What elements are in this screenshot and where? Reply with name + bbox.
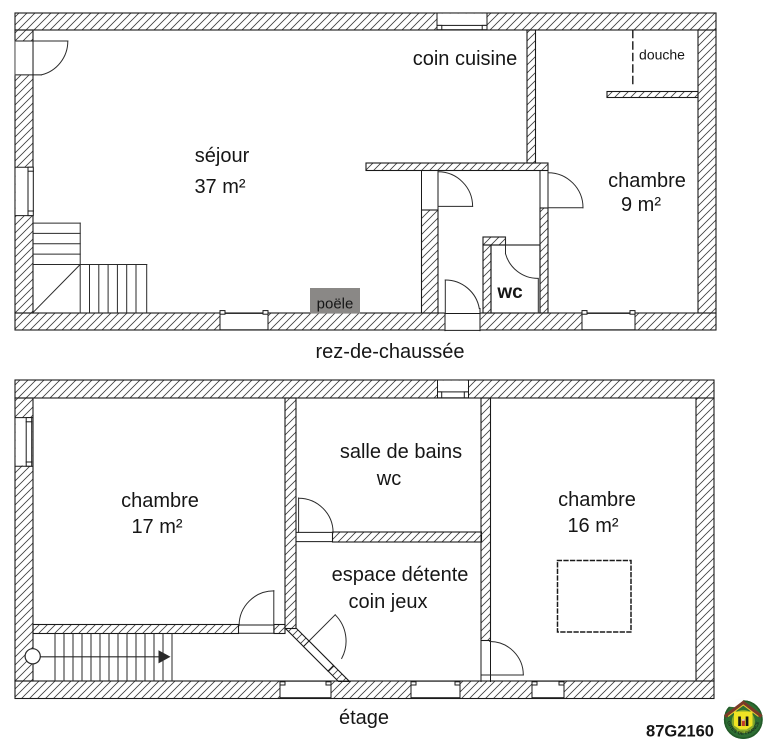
svg-text:chambre: chambre [608,170,686,192]
svg-text:chambre: chambre [558,489,636,511]
svg-text:chambre: chambre [121,490,199,512]
svg-text:9 m²: 9 m² [621,194,661,216]
svg-text:87G2160: 87G2160 [646,723,714,741]
svg-text:espace détente: espace détente [332,564,469,586]
svg-text:séjour: séjour [195,145,250,167]
svg-text:poële: poële [317,296,354,313]
svg-text:étage: étage [339,707,389,729]
svg-text:coin jeux: coin jeux [349,591,428,613]
svg-text:16 m²: 16 m² [567,515,618,537]
svg-text:rez-de-chaussée: rez-de-chaussée [316,341,465,363]
svg-text:wc: wc [376,468,401,490]
svg-text:douche: douche [639,47,685,63]
svg-text:coin cuisine: coin cuisine [413,48,518,70]
svg-text:wc: wc [496,282,523,303]
svg-text:37 m²: 37 m² [194,176,245,198]
svg-text:17 m²: 17 m² [131,516,182,538]
svg-text:salle de bains: salle de bains [340,441,462,463]
